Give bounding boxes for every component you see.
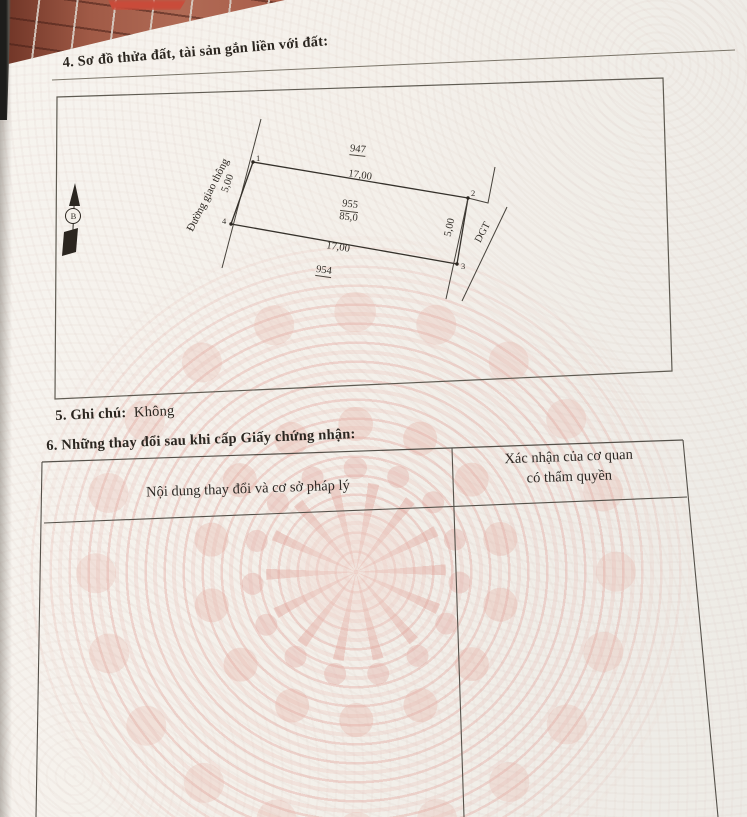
background-red-mark	[108, 0, 186, 10]
north-arrow-head	[69, 183, 80, 206]
table-right-border	[683, 440, 718, 817]
section5-label: 5. Ghi chú:	[55, 405, 127, 424]
photographed-land-certificate-page: 4. Sơ đồ thửa đất, tài sản gắn liền với …	[0, 0, 747, 817]
parcel-number-area-stack: 955 85,0	[339, 198, 360, 225]
adjacent-parcel-bottom-label: 954	[315, 264, 332, 277]
adjacent-parcel-top-number: 947	[349, 143, 366, 157]
adjacent-parcel-top-label: 947	[349, 143, 366, 156]
diagram-frame	[55, 78, 672, 399]
corner-dot-3	[455, 262, 458, 265]
table-column-divider	[452, 448, 464, 817]
north-arrow-tail	[62, 228, 78, 256]
corner-label-1: 1	[256, 153, 260, 163]
corner-label-2: 2	[471, 188, 475, 198]
north-label: B	[70, 211, 78, 221]
corner-label-4: 4	[222, 216, 226, 226]
table-left-border	[36, 462, 42, 817]
section5-value: Không	[134, 403, 175, 421]
paper-left-shadow	[0, 60, 12, 817]
corner-label-3: 3	[461, 261, 465, 271]
parcel-area: 85,0	[339, 211, 359, 225]
table-col2-header: Xác nhận của cơ quan có thẩm quyền	[454, 444, 683, 491]
corner-dot-4	[229, 222, 232, 225]
adjacent-parcel-bottom-number: 954	[315, 264, 332, 278]
corner-dot-2	[466, 196, 469, 199]
corner-dot-1	[251, 160, 254, 163]
